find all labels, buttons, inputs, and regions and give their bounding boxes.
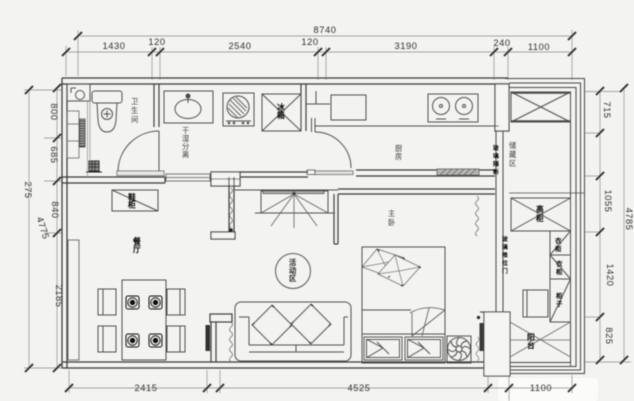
- svg-text:3190: 3190: [395, 41, 418, 51]
- svg-text:715: 715: [602, 101, 612, 118]
- svg-text:离: 离: [182, 150, 189, 159]
- svg-text:840: 840: [50, 201, 60, 218]
- svg-text:隔: 隔: [493, 160, 499, 168]
- svg-text:玻: 玻: [502, 235, 508, 243]
- svg-text:玻: 玻: [493, 144, 499, 152]
- svg-text:柜: 柜: [554, 244, 562, 253]
- svg-text:区: 区: [509, 159, 516, 168]
- svg-text:1430: 1430: [103, 41, 126, 51]
- svg-text:275: 275: [23, 181, 33, 198]
- svg-text:1420: 1420: [605, 264, 615, 287]
- svg-text:柜: 柜: [127, 200, 136, 210]
- svg-text:4785: 4785: [624, 208, 634, 231]
- svg-text:800: 800: [49, 103, 59, 120]
- svg-text:衣: 衣: [556, 259, 563, 268]
- svg-text:璃: 璃: [493, 152, 499, 160]
- svg-text:藏: 藏: [509, 150, 516, 159]
- svg-text:房: 房: [395, 152, 402, 161]
- svg-text:柜: 柜: [535, 213, 544, 223]
- svg-text:高: 高: [536, 204, 544, 214]
- svg-text:生: 生: [131, 106, 138, 115]
- svg-text:区: 区: [289, 274, 296, 283]
- svg-text:柜: 柜: [555, 267, 563, 276]
- svg-text:璃: 璃: [502, 243, 508, 251]
- svg-text:卫: 卫: [131, 97, 138, 106]
- svg-text:断: 断: [493, 168, 499, 176]
- svg-text:推: 推: [502, 251, 508, 259]
- svg-text:4525: 4525: [348, 383, 371, 393]
- svg-text:间: 间: [131, 115, 138, 124]
- svg-text:1100: 1100: [530, 383, 552, 393]
- svg-text:台: 台: [527, 340, 535, 350]
- svg-text:1100: 1100: [528, 42, 550, 52]
- svg-text:厅: 厅: [133, 245, 141, 254]
- svg-text:衣: 衣: [555, 236, 562, 245]
- svg-text:685: 685: [49, 146, 59, 163]
- svg-text:240: 240: [493, 38, 510, 48]
- svg-text:柜: 柜: [555, 291, 563, 300]
- svg-text:子: 子: [556, 300, 563, 308]
- svg-text:主: 主: [388, 209, 395, 218]
- svg-text:825: 825: [604, 327, 614, 344]
- svg-text:箱: 箱: [277, 110, 285, 120]
- svg-text:8740: 8740: [314, 25, 337, 35]
- svg-text:门: 门: [502, 267, 508, 275]
- svg-text:拉: 拉: [502, 259, 508, 267]
- svg-text:2415: 2415: [135, 383, 158, 393]
- svg-text:1055: 1055: [603, 190, 613, 213]
- svg-text:2540: 2540: [229, 41, 252, 51]
- svg-text:120: 120: [148, 37, 165, 47]
- svg-text:120: 120: [301, 37, 318, 47]
- svg-text:储: 储: [509, 141, 516, 150]
- svg-text:卧: 卧: [388, 218, 395, 227]
